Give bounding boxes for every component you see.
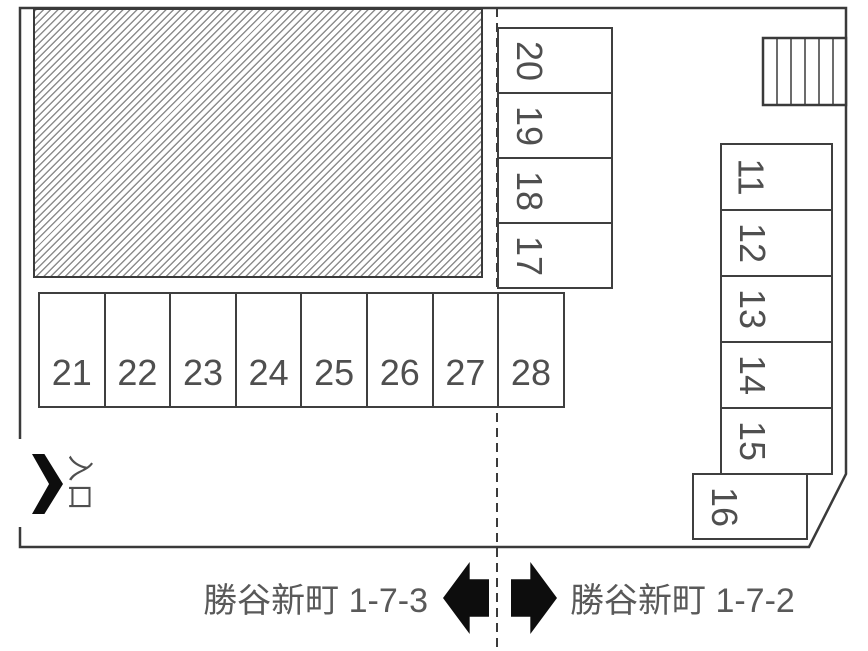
space-14-label: 14 — [731, 355, 773, 395]
space-13: 13 — [720, 275, 833, 343]
stairs-area — [763, 38, 846, 105]
space-23-label: 23 — [183, 352, 223, 394]
space-18: 18 — [497, 157, 613, 224]
space-18-label: 18 — [508, 170, 550, 210]
space-row-21-28: 21 22 23 24 25 26 27 28 — [38, 292, 565, 408]
space-15: 15 — [720, 407, 833, 475]
space-17: 17 — [497, 222, 613, 289]
space-column-11-15: 11 12 13 14 15 — [720, 143, 833, 475]
entrance-label-wrap: 入口 — [62, 452, 102, 514]
space-28: 28 — [497, 292, 565, 408]
space-23: 23 — [169, 292, 237, 408]
street-label-left: 勝谷新町 1-7-3 — [200, 577, 428, 625]
street-label-right: 勝谷新町 1-7-2 — [570, 577, 795, 625]
space-24: 24 — [235, 292, 303, 408]
space-20-label: 20 — [508, 40, 550, 80]
space-22: 22 — [104, 292, 172, 408]
space-16-label: 16 — [703, 486, 745, 526]
space-27: 27 — [432, 292, 500, 408]
space-column-17-20: 20 19 18 17 — [497, 27, 613, 289]
space-20: 20 — [497, 27, 613, 94]
space-16: 16 — [692, 473, 808, 540]
space-19: 19 — [497, 92, 613, 159]
space-21: 21 — [38, 292, 106, 408]
building-hatched-area — [33, 8, 483, 278]
space-11-label: 11 — [730, 158, 772, 195]
entrance-label: 入口 — [63, 454, 102, 512]
parking-map: 20 19 18 17 21 22 23 24 25 26 27 28 11 1… — [0, 0, 868, 651]
space-25-label: 25 — [314, 352, 354, 394]
space-26-label: 26 — [380, 352, 420, 394]
space-24-label: 24 — [249, 352, 289, 394]
space-14: 14 — [720, 341, 833, 409]
space-12-label: 12 — [731, 223, 773, 263]
space-16-wrap: 16 — [692, 473, 808, 540]
space-26: 26 — [366, 292, 434, 408]
space-17-label: 17 — [508, 235, 550, 275]
space-22-label: 22 — [117, 352, 157, 394]
space-12: 12 — [720, 209, 833, 277]
space-19-label: 19 — [508, 105, 550, 145]
space-27-label: 27 — [445, 352, 485, 394]
space-15-label: 15 — [731, 421, 773, 461]
space-13-label: 13 — [731, 289, 773, 329]
space-11: 11 — [720, 143, 833, 211]
space-28-label: 28 — [511, 352, 551, 394]
space-25: 25 — [300, 292, 368, 408]
space-21-label: 21 — [52, 352, 92, 394]
